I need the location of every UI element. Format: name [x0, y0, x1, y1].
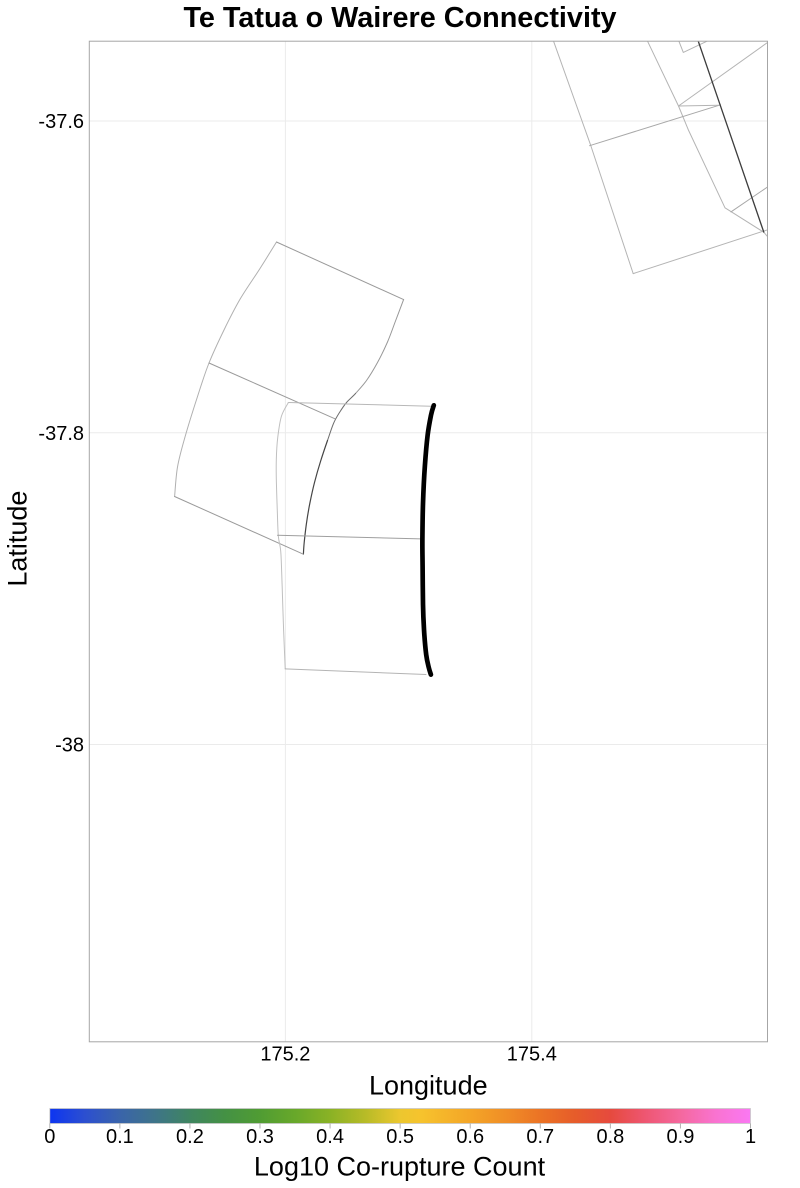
- svg-text:Log10 Co-rupture Count: Log10 Co-rupture Count: [254, 1152, 546, 1182]
- svg-text:-37.8: -37.8: [38, 423, 84, 445]
- svg-text:0: 0: [44, 1126, 55, 1148]
- svg-text:Longitude: Longitude: [369, 1071, 488, 1101]
- svg-text:0.2: 0.2: [176, 1126, 204, 1148]
- svg-text:0.7: 0.7: [526, 1126, 554, 1148]
- svg-text:0.9: 0.9: [667, 1126, 695, 1148]
- svg-text:0.8: 0.8: [596, 1126, 624, 1148]
- svg-text:0.4: 0.4: [316, 1126, 344, 1148]
- svg-text:0.6: 0.6: [456, 1126, 484, 1148]
- svg-text:175.2: 175.2: [260, 1044, 310, 1066]
- svg-text:0.3: 0.3: [246, 1126, 274, 1148]
- svg-text:-38: -38: [55, 735, 84, 757]
- svg-text:Te Tatua o Wairere Connectivit: Te Tatua o Wairere Connectivity: [183, 2, 616, 34]
- svg-text:175.4: 175.4: [507, 1044, 557, 1066]
- svg-text:Latitude: Latitude: [3, 491, 33, 587]
- svg-text:0.1: 0.1: [106, 1126, 134, 1148]
- svg-text:0.5: 0.5: [386, 1126, 414, 1148]
- svg-text:-37.6: -37.6: [38, 111, 84, 133]
- svg-text:1: 1: [745, 1126, 756, 1148]
